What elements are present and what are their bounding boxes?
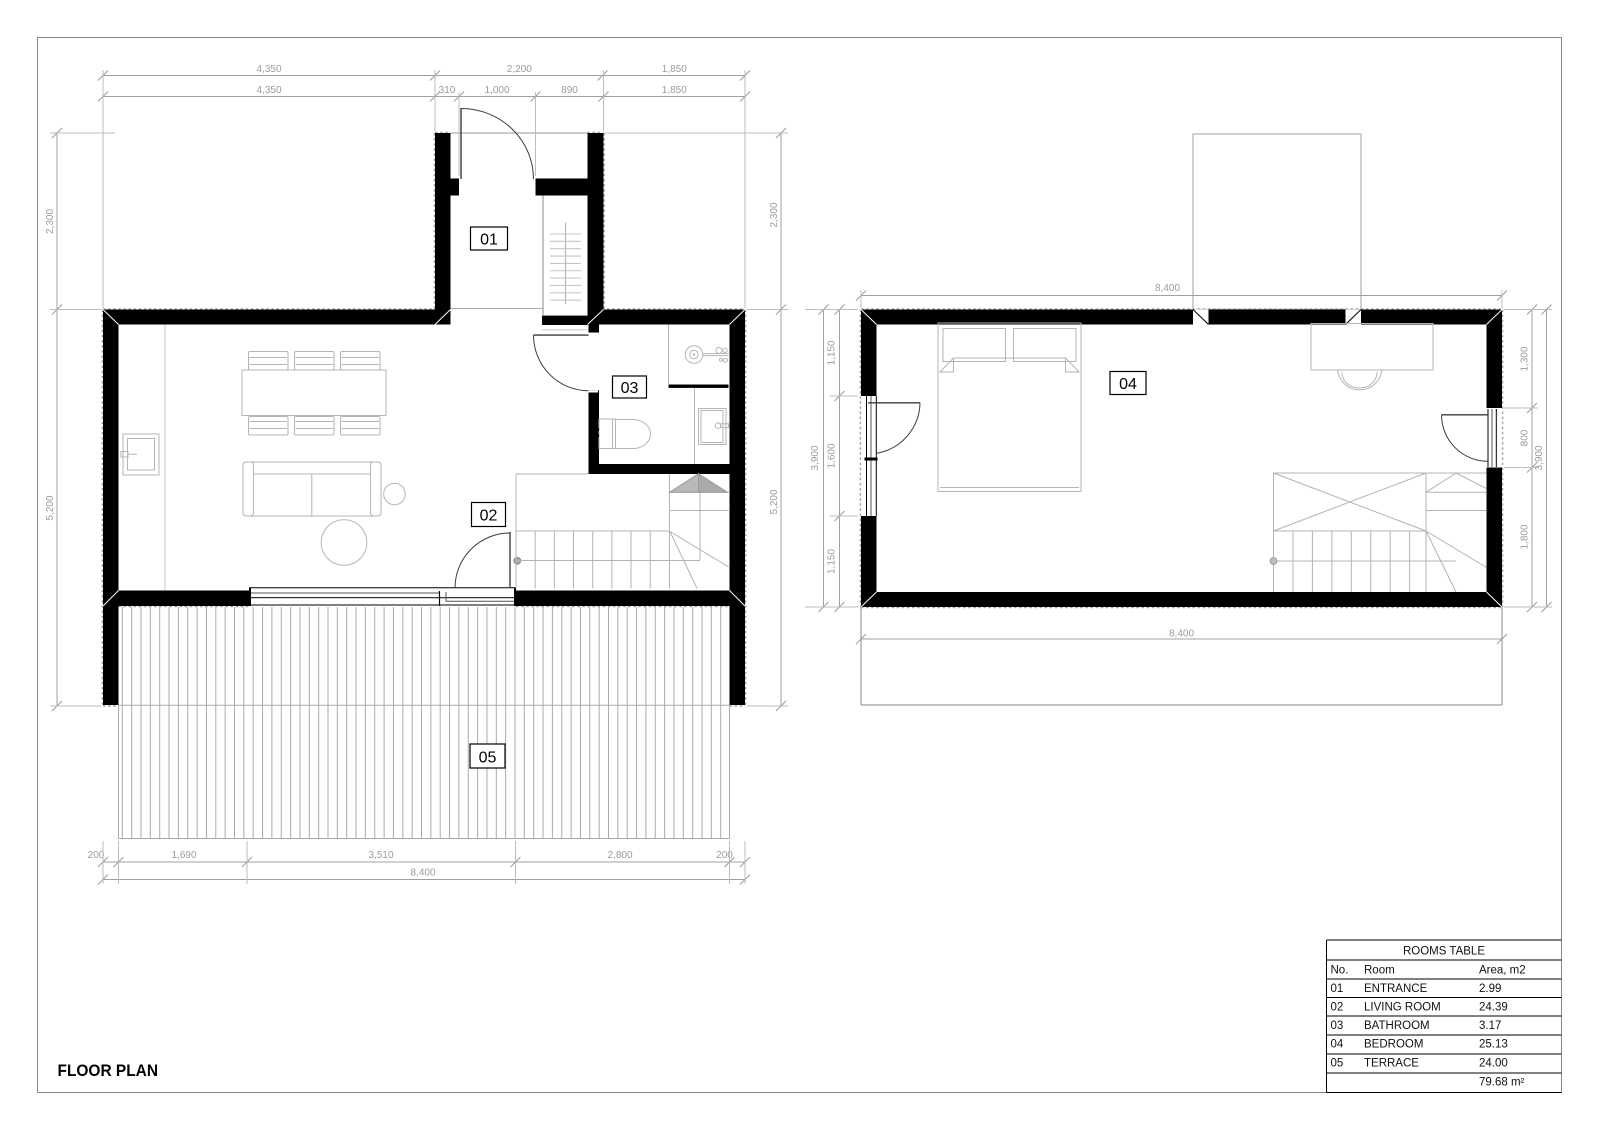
svg-text:Area, m2: Area, m2 bbox=[1479, 965, 1526, 977]
svg-text:310: 310 bbox=[439, 85, 456, 96]
svg-text:24.39: 24.39 bbox=[1479, 1002, 1508, 1014]
svg-text:8,400: 8,400 bbox=[1155, 283, 1180, 294]
svg-text:3.17: 3.17 bbox=[1479, 1020, 1501, 1032]
svg-text:2.99: 2.99 bbox=[1479, 983, 1501, 995]
svg-text:02: 02 bbox=[1331, 1002, 1344, 1014]
svg-text:1,850: 1,850 bbox=[662, 64, 687, 75]
svg-text:5,200: 5,200 bbox=[769, 489, 780, 514]
svg-text:03: 03 bbox=[1331, 1020, 1344, 1032]
svg-text:3,510: 3,510 bbox=[368, 850, 393, 861]
svg-text:25.13: 25.13 bbox=[1479, 1039, 1508, 1051]
svg-text:1,800: 1,800 bbox=[1520, 524, 1531, 549]
svg-text:1,690: 1,690 bbox=[171, 850, 196, 861]
svg-text:05: 05 bbox=[479, 750, 497, 767]
svg-text:1,000: 1,000 bbox=[484, 85, 509, 96]
svg-text:1,600: 1,600 bbox=[827, 443, 838, 468]
svg-text:8,400: 8,400 bbox=[410, 868, 435, 879]
svg-text:04: 04 bbox=[1119, 376, 1137, 393]
svg-text:ROOMS TABLE: ROOMS TABLE bbox=[1403, 946, 1485, 958]
svg-text:3,900: 3,900 bbox=[1534, 445, 1545, 470]
svg-text:02: 02 bbox=[480, 508, 498, 525]
svg-text:ENTRANCE: ENTRANCE bbox=[1364, 983, 1428, 995]
svg-text:3,900: 3,900 bbox=[810, 445, 821, 470]
svg-text:800: 800 bbox=[1520, 429, 1531, 446]
svg-text:1,300: 1,300 bbox=[1520, 346, 1531, 371]
svg-text:4,350: 4,350 bbox=[256, 64, 281, 75]
svg-text:BEDROOM: BEDROOM bbox=[1364, 1039, 1423, 1051]
svg-text:05: 05 bbox=[1331, 1058, 1344, 1070]
svg-text:24.00: 24.00 bbox=[1479, 1058, 1508, 1070]
svg-text:Room: Room bbox=[1364, 965, 1395, 977]
svg-text:1,150: 1,150 bbox=[827, 549, 838, 574]
svg-text:1,850: 1,850 bbox=[662, 85, 687, 96]
svg-text:5,200: 5,200 bbox=[45, 495, 56, 520]
svg-text:1,150: 1,150 bbox=[827, 340, 838, 365]
svg-text:LIVING ROOM: LIVING ROOM bbox=[1364, 1002, 1441, 1014]
svg-text:2,200: 2,200 bbox=[507, 64, 532, 75]
svg-text:79.68 m²: 79.68 m² bbox=[1479, 1077, 1525, 1089]
svg-text:01: 01 bbox=[1331, 983, 1344, 995]
svg-text:BATHROOM: BATHROOM bbox=[1364, 1020, 1430, 1032]
svg-text:8,400: 8,400 bbox=[1169, 629, 1194, 640]
svg-text:2,300: 2,300 bbox=[769, 202, 780, 227]
svg-text:2,300: 2,300 bbox=[45, 209, 56, 234]
svg-text:No.: No. bbox=[1331, 965, 1349, 977]
svg-text:2,800: 2,800 bbox=[607, 850, 632, 861]
svg-text:4,350: 4,350 bbox=[256, 85, 281, 96]
svg-text:200: 200 bbox=[88, 850, 105, 861]
svg-text:03: 03 bbox=[621, 380, 639, 397]
svg-text:TERRACE: TERRACE bbox=[1364, 1058, 1419, 1070]
svg-text:200: 200 bbox=[716, 850, 733, 861]
svg-text:FLOOR PLAN: FLOOR PLAN bbox=[58, 1061, 159, 1080]
svg-text:04: 04 bbox=[1331, 1039, 1344, 1051]
svg-text:890: 890 bbox=[561, 85, 578, 96]
svg-text:01: 01 bbox=[480, 232, 498, 249]
